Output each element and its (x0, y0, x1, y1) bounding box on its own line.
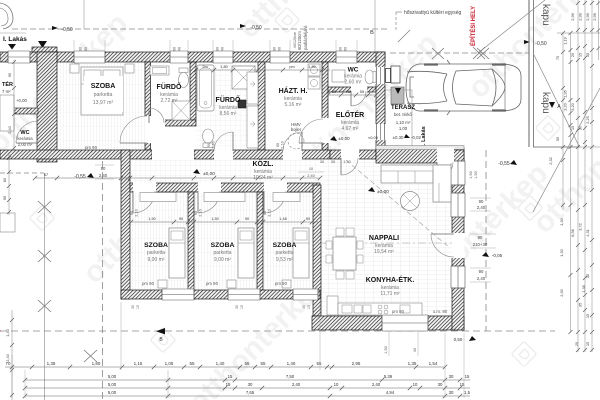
svg-text:2,10: 2,10 (281, 141, 285, 148)
svg-text:padlásfeljáró: padlásfeljáró (303, 25, 308, 50)
svg-text:5,00: 5,00 (108, 390, 117, 395)
svg-text:15: 15 (136, 305, 140, 309)
svg-text:90: 90 (101, 166, 106, 171)
svg-text:4,67 m²: 4,67 m² (342, 126, 359, 132)
svg-text:2,40: 2,40 (7, 125, 12, 133)
svg-text:90: 90 (273, 47, 277, 51)
svg-text:40: 40 (221, 47, 225, 51)
svg-text:2,60 m²: 2,60 m² (345, 80, 362, 86)
svg-text:1,80: 1,80 (308, 65, 315, 69)
svg-text:2,99: 2,99 (592, 13, 597, 21)
svg-text:30: 30 (248, 382, 253, 387)
svg-text:Y: Y (0, 329, 3, 333)
svg-text:2,99: 2,99 (578, 13, 583, 21)
svg-text:1,50: 1,50 (148, 217, 155, 221)
svg-text:1,00: 1,00 (399, 126, 408, 131)
svg-text:1,35: 1,35 (408, 361, 417, 366)
svg-text:90: 90 (179, 217, 183, 221)
svg-text:o.m. 90: o.m. 90 (433, 309, 448, 314)
svg-text:40: 40 (178, 47, 182, 51)
svg-text:7,50: 7,50 (286, 374, 295, 379)
svg-text:KÖZL.: KÖZL. (253, 159, 274, 168)
svg-text:kerámia: kerámia (17, 136, 33, 141)
svg-text:ELŐTÉR: ELŐTÉR (336, 110, 364, 119)
svg-text:1,40: 1,40 (287, 361, 296, 366)
svg-text:3,72: 3,72 (578, 223, 583, 231)
svg-text:60/120cm: 60/120cm (297, 31, 302, 50)
svg-text:30: 30 (235, 305, 239, 309)
svg-text:19,54 m²: 19,54 m² (374, 249, 394, 255)
svg-text:parketta: parketta (275, 250, 293, 256)
svg-text:30: 30 (449, 374, 454, 379)
svg-text:-0,55: -0,55 (498, 161, 510, 167)
svg-text:60: 60 (344, 47, 348, 51)
svg-text:±0,00: ±0,00 (203, 171, 215, 177)
svg-text:SZOBA: SZOBA (144, 242, 168, 249)
svg-text:15: 15 (307, 305, 311, 309)
svg-text:60: 60 (84, 47, 88, 51)
svg-text:55: 55 (189, 361, 195, 366)
svg-text:15: 15 (226, 382, 231, 387)
svg-text:2,99: 2,99 (585, 13, 590, 21)
svg-text:15: 15 (240, 305, 244, 309)
svg-text:6,56: 6,56 (570, 229, 575, 237)
svg-text:WC: WC (348, 67, 359, 74)
svg-text:KONYHA-ÉTK.: KONYHA-ÉTK. (366, 275, 415, 284)
svg-text:90: 90 (263, 211, 267, 215)
svg-text:TERASZ: TERASZ (391, 105, 415, 111)
svg-text:2,10: 2,10 (135, 209, 139, 216)
svg-text:55: 55 (244, 361, 250, 366)
svg-text:1,30: 1,30 (559, 248, 564, 256)
svg-text:2m: 2m (202, 65, 207, 69)
svg-text:60: 60 (278, 47, 282, 51)
svg-text:2,40: 2,40 (292, 382, 301, 387)
svg-text:15: 15 (578, 53, 583, 57)
svg-text:10: 10 (413, 382, 418, 387)
svg-text:67: 67 (44, 173, 48, 177)
svg-text:2,10: 2,10 (199, 209, 203, 216)
svg-text:9,53 m²: 9,53 m² (276, 257, 293, 263)
svg-text:HÁZT. H.: HÁZT. H. (279, 86, 308, 95)
svg-text:parketta: parketta (147, 250, 165, 256)
svg-text:I. Lakás: I. Lakás (3, 36, 27, 43)
svg-text:60: 60 (173, 47, 177, 51)
svg-text:55: 55 (360, 90, 364, 94)
svg-text:1,50: 1,50 (474, 171, 478, 178)
svg-text:30: 30 (320, 160, 324, 164)
svg-text:SZOBA: SZOBA (211, 242, 235, 249)
svg-text:40: 40 (413, 348, 417, 352)
svg-text:1,95: 1,95 (563, 90, 568, 98)
svg-text:2,25: 2,25 (585, 116, 590, 124)
svg-text:8,56 m²: 8,56 m² (220, 111, 237, 117)
svg-text:90: 90 (478, 235, 483, 240)
svg-text:2,40: 2,40 (372, 382, 381, 387)
svg-text:4,94: 4,94 (386, 390, 395, 395)
svg-text:1,54: 1,54 (429, 361, 438, 366)
svg-text:5,00: 5,00 (108, 374, 117, 379)
svg-text:parketta: parketta (213, 250, 231, 256)
svg-text:90: 90 (245, 217, 249, 221)
svg-text:SZOBA: SZOBA (91, 83, 116, 90)
svg-text:55: 55 (260, 361, 266, 366)
svg-text:9,00 m²: 9,00 m² (148, 257, 165, 263)
svg-text:1,35: 1,35 (47, 361, 56, 366)
svg-text:NAPPALI: NAPPALI (369, 235, 399, 242)
svg-text:1,40: 1,40 (5, 328, 10, 336)
svg-text:pm 90: pm 90 (85, 145, 98, 150)
svg-text:30: 30 (438, 382, 443, 387)
svg-text:1,50: 1,50 (469, 171, 473, 178)
svg-text:3,20: 3,20 (563, 102, 568, 110)
svg-text:1,19: 1,19 (563, 37, 568, 45)
svg-text:2,30: 2,30 (559, 288, 564, 296)
svg-text:35: 35 (331, 160, 335, 164)
svg-text:90: 90 (306, 217, 310, 221)
svg-text:1,30: 1,30 (559, 217, 564, 225)
svg-text:kapu: kapu (540, 92, 551, 114)
svg-text:7,65: 7,65 (246, 390, 255, 395)
svg-text:-0,02: -0,02 (411, 135, 421, 140)
svg-text:90: 90 (130, 211, 134, 215)
svg-text:15: 15 (585, 314, 590, 318)
svg-text:2,32: 2,32 (548, 157, 553, 165)
svg-text:0,50: 0,50 (454, 337, 463, 342)
svg-text:2,72 m²: 2,72 m² (161, 98, 178, 104)
svg-text:90: 90 (216, 47, 220, 51)
svg-text:90: 90 (479, 199, 484, 204)
svg-text:-0,50: -0,50 (61, 27, 73, 33)
svg-text:SZOBA: SZOBA (273, 242, 297, 249)
svg-text:40/120cm: 40/120cm (293, 32, 297, 49)
svg-text:2,10: 2,10 (212, 141, 216, 148)
svg-text:-0,50: -0,50 (535, 41, 547, 47)
svg-text:3,20: 3,20 (570, 102, 575, 110)
svg-text:pm 90: pm 90 (275, 281, 288, 286)
svg-text:1,15: 1,15 (134, 361, 143, 366)
svg-text:pm 90: pm 90 (142, 281, 155, 286)
svg-text:1,48: 1,48 (279, 217, 286, 221)
svg-text:55: 55 (316, 361, 322, 366)
svg-text:13,97 m²: 13,97 m² (93, 100, 114, 106)
svg-text:1,50: 1,50 (211, 217, 218, 221)
svg-text:1,80: 1,80 (220, 65, 227, 69)
svg-text:±0,00: ±0,00 (377, 189, 389, 195)
svg-text:FÜRDŐ: FÜRDŐ (216, 95, 241, 104)
svg-text:≈0,00: ≈0,00 (368, 135, 379, 140)
svg-text:ÉPÍTÉSI HELY: ÉPÍTÉSI HELY (469, 6, 477, 46)
svg-text:bet. térkő: bet. térkő (394, 112, 413, 117)
svg-text:30: 30 (449, 390, 454, 395)
svg-text:9,00 m²: 9,00 m² (214, 257, 231, 263)
svg-text:2,40: 2,40 (477, 276, 486, 281)
svg-text:15: 15 (570, 126, 575, 130)
svg-text:bojler: bojler (291, 127, 302, 132)
svg-text:B: B (370, 30, 374, 36)
svg-text:4,31: 4,31 (585, 229, 590, 237)
svg-text:90: 90 (339, 47, 343, 51)
svg-text:15: 15 (228, 374, 233, 379)
svg-text:15: 15 (465, 374, 470, 379)
svg-text:5,39: 5,39 (384, 374, 393, 379)
svg-text:35: 35 (578, 303, 583, 307)
svg-text:2,40: 2,40 (99, 173, 108, 178)
svg-text:75: 75 (346, 90, 350, 94)
svg-text:60: 60 (332, 90, 336, 94)
svg-text:90: 90 (194, 211, 198, 215)
svg-text:1,40: 1,40 (216, 361, 225, 366)
svg-text:15: 15 (585, 342, 590, 346)
svg-text:1,05: 1,05 (165, 361, 174, 366)
svg-text:2,99: 2,99 (570, 13, 575, 21)
svg-text:90: 90 (207, 143, 211, 147)
svg-text:90: 90 (479, 269, 484, 274)
svg-text:±0,00: ±0,00 (338, 136, 350, 141)
svg-text:5,16 m²: 5,16 m² (285, 102, 302, 108)
svg-text:1,10 m²: 1,10 m² (396, 120, 411, 125)
svg-text:-0,55: -0,55 (74, 174, 86, 180)
svg-text:-0,05: -0,05 (492, 253, 503, 258)
svg-text:2,40: 2,40 (477, 205, 486, 210)
svg-text:pm 90: pm 90 (206, 281, 219, 286)
svg-text:1,5: 1,5 (464, 390, 471, 395)
svg-text:11,71 m²: 11,71 m² (380, 291, 400, 297)
svg-text:pm 90: pm 90 (392, 309, 405, 314)
svg-text:-0,50: -0,50 (250, 25, 262, 31)
svg-text:10: 10 (334, 382, 339, 387)
svg-text:210+30: 210+30 (473, 242, 488, 247)
svg-text:1,50: 1,50 (384, 346, 388, 353)
svg-text:90: 90 (276, 143, 280, 147)
svg-text:1,38: 1,38 (581, 285, 586, 293)
svg-text:2,95: 2,95 (352, 361, 361, 366)
svg-text:parketta: parketta (94, 92, 113, 98)
svg-text:5,00: 5,00 (108, 382, 117, 387)
svg-text:2,40: 2,40 (5, 353, 10, 361)
svg-text:+0,00: +0,00 (16, 98, 27, 103)
svg-text:1,80: 1,80 (92, 361, 101, 366)
svg-text:2. Lakás: 2. Lakás (421, 126, 427, 148)
svg-text:±0,30: ±0,30 (393, 135, 404, 140)
svg-text:30: 30 (131, 305, 135, 309)
svg-text:30: 30 (302, 305, 306, 309)
svg-text:10: 10 (309, 167, 313, 171)
svg-text:FÜRDŐ: FÜRDŐ (157, 82, 182, 91)
svg-text:TÉR: TÉR (2, 80, 13, 88)
svg-text:7 m²: 7 m² (2, 89, 11, 94)
svg-text:pm: pm (289, 65, 294, 69)
svg-text:kapu: kapu (540, 4, 551, 26)
svg-text:hőszivattyú kültéri egység: hőszivattyú kültéri egység (404, 10, 461, 16)
svg-text:2,40: 2,40 (307, 174, 314, 178)
svg-text:2,10: 2,10 (268, 209, 272, 216)
svg-text:90: 90 (79, 47, 83, 51)
